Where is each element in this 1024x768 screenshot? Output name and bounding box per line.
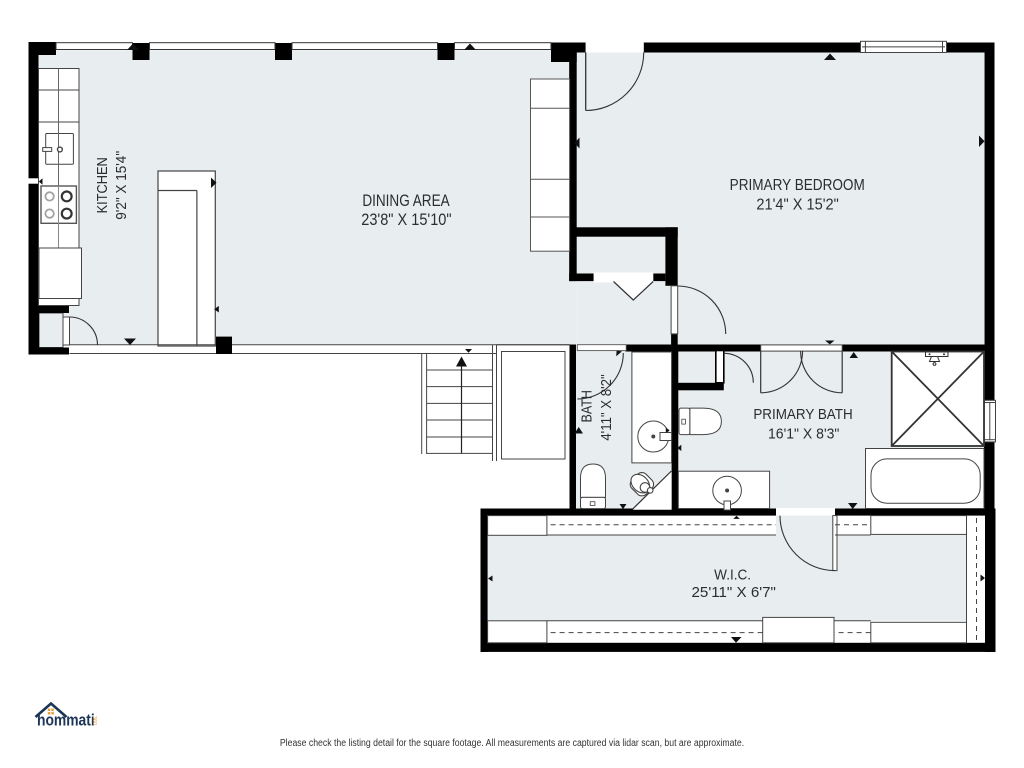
svg-text:23'8" X 15'10": 23'8" X 15'10" [361,211,451,229]
svg-text:PRIMARY BATH: PRIMARY BATH [753,406,852,423]
svg-text:DINING AREA: DINING AREA [362,192,450,211]
svg-text:Please check the listing detai: Please check the listing detail for the … [280,737,744,749]
svg-text:21'4" X 15'2": 21'4" X 15'2" [756,196,838,214]
svg-text:W.I.C.: W.I.C. [714,567,751,584]
svg-text:16'1" X 8'3": 16'1" X 8'3" [768,426,839,442]
svg-text:4'11" X 8'2": 4'11" X 8'2" [597,374,614,440]
svg-text:25'11" X 6'7": 25'11" X 6'7" [691,584,775,601]
svg-text:KITCHEN: KITCHEN [93,157,110,213]
svg-text:BATH: BATH [579,390,595,422]
svg-text:360: 360 [91,716,97,725]
svg-text:hommati: hommati [37,711,95,729]
svg-text:PRIMARY BEDROOM: PRIMARY BEDROOM [730,177,865,194]
svg-text:9'2" X 15'4": 9'2" X 15'4" [113,151,130,220]
